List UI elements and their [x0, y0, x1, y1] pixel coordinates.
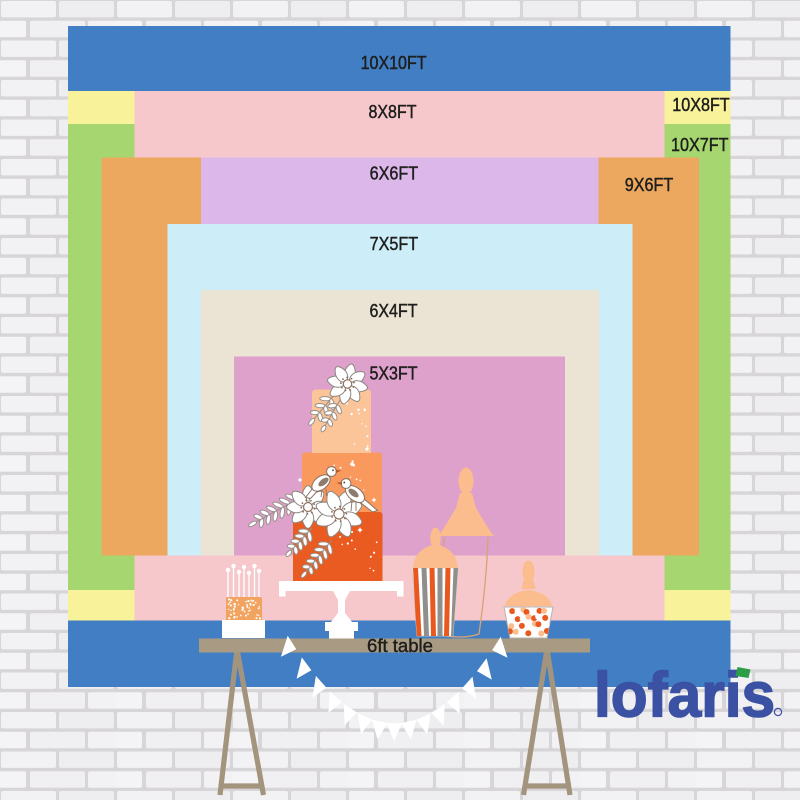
- svg-text:10X8FT: 10X8FT: [672, 94, 730, 115]
- svg-text:7X5FT: 7X5FT: [370, 233, 419, 254]
- svg-text:10X10FT: 10X10FT: [361, 52, 427, 73]
- svg-text:10X7FT: 10X7FT: [671, 134, 729, 155]
- svg-text:6X6FT: 6X6FT: [370, 162, 419, 183]
- svg-text:6ft table: 6ft table: [367, 635, 433, 656]
- svg-text:6X4FT: 6X4FT: [370, 300, 418, 321]
- svg-text:8X8FT: 8X8FT: [369, 101, 417, 122]
- svg-text:5X3FT: 5X3FT: [370, 362, 418, 383]
- svg-text:9X6FT: 9X6FT: [625, 174, 674, 195]
